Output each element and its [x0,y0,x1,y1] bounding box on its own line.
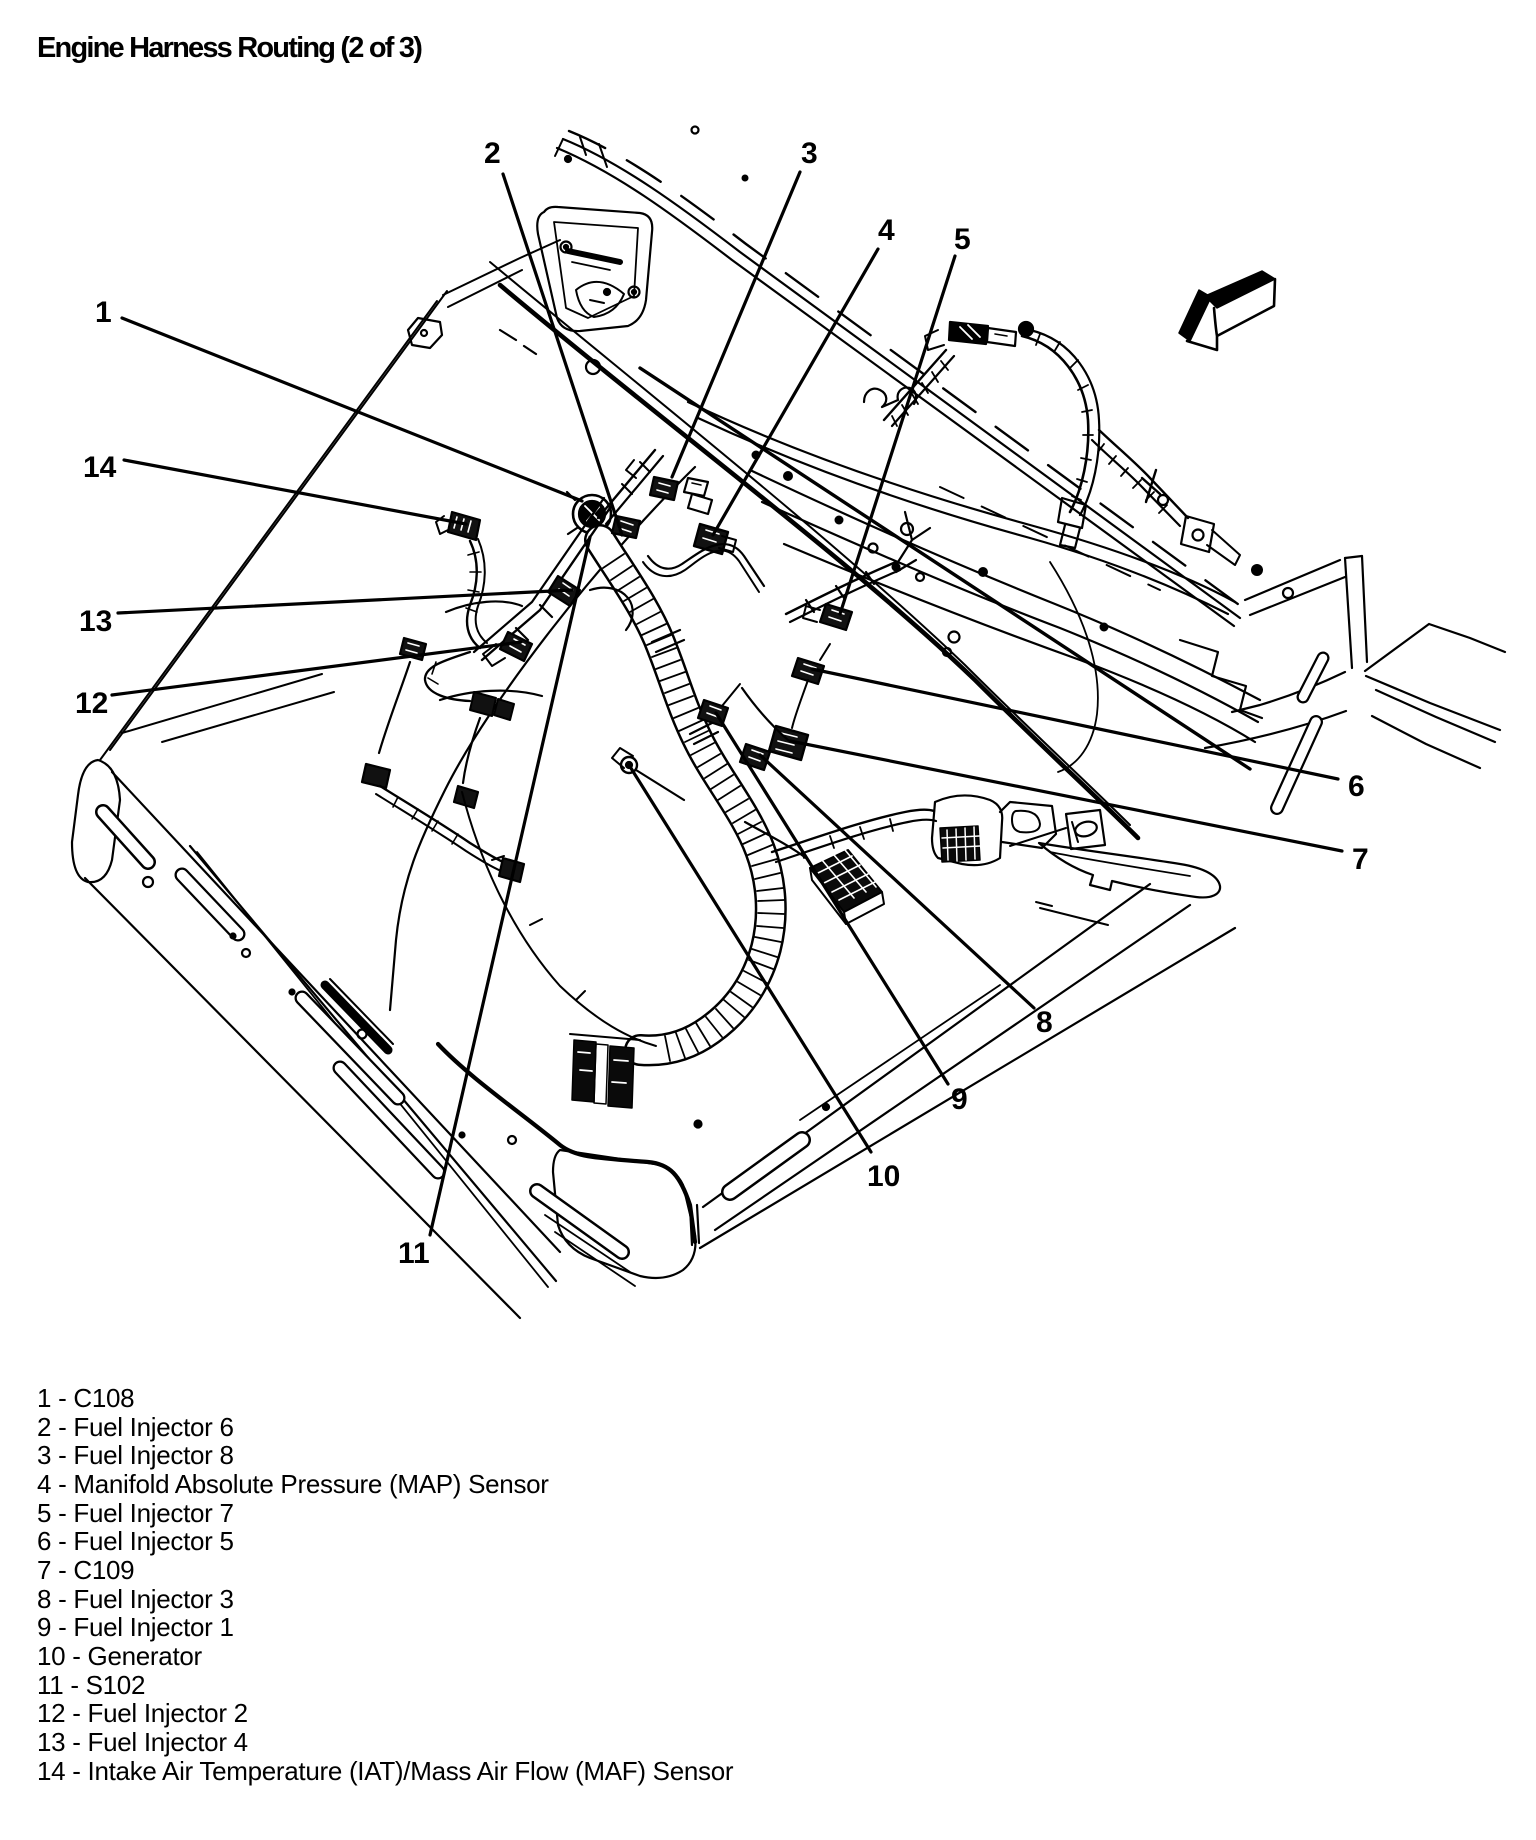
svg-text:5: 5 [954,223,971,256]
svg-text:8: 8 [1036,1006,1053,1039]
svg-text:12: 12 [75,687,108,720]
svg-text:4 - Manifold Absolute Pressure: 4 - Manifold Absolute Pressure (MAP) Sen… [37,1469,549,1499]
svg-text:7 - C109: 7 - C109 [37,1555,134,1585]
svg-text:2 - Fuel Injector 6: 2 - Fuel Injector 6 [37,1412,234,1442]
svg-text:1: 1 [95,296,112,329]
svg-text:1 - C108: 1 - C108 [37,1383,134,1413]
svg-text:14 - Intake Air Temperature (I: 14 - Intake Air Temperature (IAT)/Mass A… [37,1756,734,1786]
svg-text:8 - Fuel Injector 3: 8 - Fuel Injector 3 [37,1584,234,1614]
svg-text:3: 3 [801,137,818,170]
svg-text:10: 10 [867,1160,900,1193]
svg-text:5 - Fuel Injector 7: 5 - Fuel Injector 7 [37,1498,234,1528]
svg-text:7: 7 [1352,843,1369,876]
svg-text:13: 13 [79,605,112,638]
svg-text:12 - Fuel Injector 2: 12 - Fuel Injector 2 [37,1698,248,1728]
svg-text:2: 2 [484,137,501,170]
svg-text:3 - Fuel Injector 8: 3 - Fuel Injector 8 [37,1440,234,1470]
svg-text:9: 9 [951,1083,968,1116]
svg-text:11 - S102: 11 - S102 [37,1670,145,1700]
svg-text:11: 11 [398,1237,430,1270]
svg-text:6 - Fuel Injector 5: 6 - Fuel Injector 5 [37,1526,234,1556]
svg-text:10 - Generator: 10 - Generator [37,1641,203,1671]
svg-text:13 - Fuel Injector 4: 13 - Fuel Injector 4 [37,1727,248,1757]
svg-text:Engine Harness Routing (2 of 3: Engine Harness Routing (2 of 3) [37,32,422,64]
svg-text:9 - Fuel Injector 1: 9 - Fuel Injector 1 [37,1612,234,1642]
svg-text:6: 6 [1348,770,1365,803]
svg-text:4: 4 [878,214,895,247]
svg-text:14: 14 [83,451,117,484]
